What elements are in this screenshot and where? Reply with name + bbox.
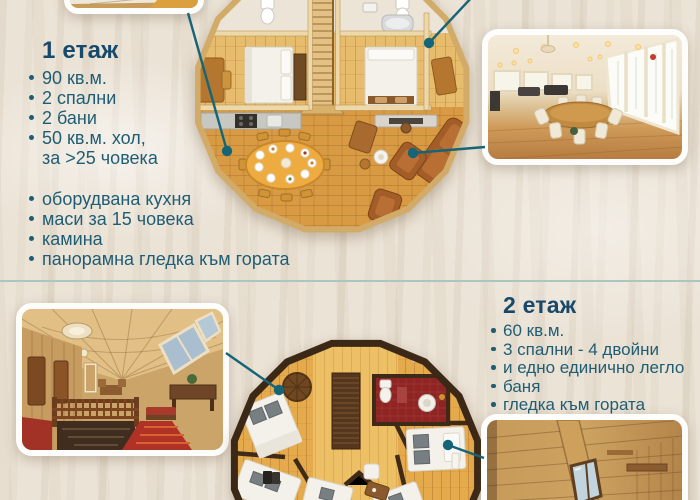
windows-left <box>494 71 592 91</box>
attic-hall-photo <box>16 303 229 456</box>
floor1-info: 1 етаж 90 кв.м.2 спални2 бани50 кв.м. хо… <box>28 38 308 269</box>
section-divider <box>0 280 700 282</box>
plant <box>187 374 197 384</box>
round-table <box>283 373 311 401</box>
fixture <box>439 394 445 400</box>
feature-item: 3 спални - 4 двойни <box>490 341 695 360</box>
feature-item: баня <box>490 378 695 397</box>
bath-mat <box>397 387 407 403</box>
bench-cushion <box>146 407 176 416</box>
attic-bedroom-photo <box>481 414 688 500</box>
floor2-title: 2 етаж <box>503 293 695 318</box>
floor2-plan <box>225 335 487 500</box>
attic-hall-photo-image <box>22 309 223 450</box>
luggage <box>263 471 272 484</box>
bathroom <box>374 376 448 424</box>
door <box>54 361 68 403</box>
feature-item: за >25 човека <box>28 148 308 168</box>
wall-ledge <box>627 464 667 471</box>
feature-item: гледка към гората <box>490 396 695 415</box>
pendant-lamp <box>541 46 555 53</box>
floor1-features-list: 90 кв.м.2 спални2 бани50 кв.м. хол,за >2… <box>28 68 308 168</box>
attic-bedroom-photo-image <box>487 420 682 500</box>
feature-item: оборудвана кухня <box>28 189 308 209</box>
piano-silhouette <box>544 85 568 95</box>
round-house-floorplan-poster: 1 етаж 90 кв.м.2 спални2 бани50 кв.м. хо… <box>0 0 700 500</box>
sofa-silhouette <box>518 87 540 96</box>
luggage <box>272 472 280 484</box>
feature-item: камина <box>28 229 308 249</box>
bed-right <box>365 47 417 105</box>
floor2-features-list: 60 кв.м.3 спални - 4 двойнии едно единич… <box>490 322 695 415</box>
red-carpet <box>22 417 52 450</box>
coffee-table <box>170 385 216 399</box>
feature-item: 90 кв.м. <box>28 68 308 88</box>
feature-item: 60 кв.м. <box>490 322 695 341</box>
window-ornament <box>650 54 656 60</box>
floor1-title: 1 етаж <box>42 38 308 64</box>
garland <box>570 127 578 135</box>
kitchen-photo-image <box>70 0 198 8</box>
floor1-amenities-list: оборудвана кухнямаси за 15 човекакаминап… <box>28 189 308 269</box>
feature-item: панорамна гледка към гората <box>28 249 308 269</box>
door <box>28 357 45 405</box>
tv <box>490 91 500 111</box>
nightstand <box>364 464 379 479</box>
dining-room-photo <box>482 29 688 165</box>
feature-item: 2 бани <box>28 108 308 128</box>
shelf <box>607 450 633 455</box>
feature-item: 50 кв.м. хол, <box>28 128 308 148</box>
kitchen-photo <box>64 0 204 14</box>
feature-item: и едно единично легло <box>490 359 695 378</box>
staircase <box>332 373 360 449</box>
toilet <box>380 380 391 388</box>
floor2-info: 2 етаж 60 кв.м.3 спални - 4 двойнии едно… <box>490 293 695 415</box>
feature-item: маси за 15 човека <box>28 209 308 229</box>
feature-item: 2 спални <box>28 88 308 108</box>
dining-room-photo-image <box>488 35 682 159</box>
side-table <box>401 123 411 133</box>
